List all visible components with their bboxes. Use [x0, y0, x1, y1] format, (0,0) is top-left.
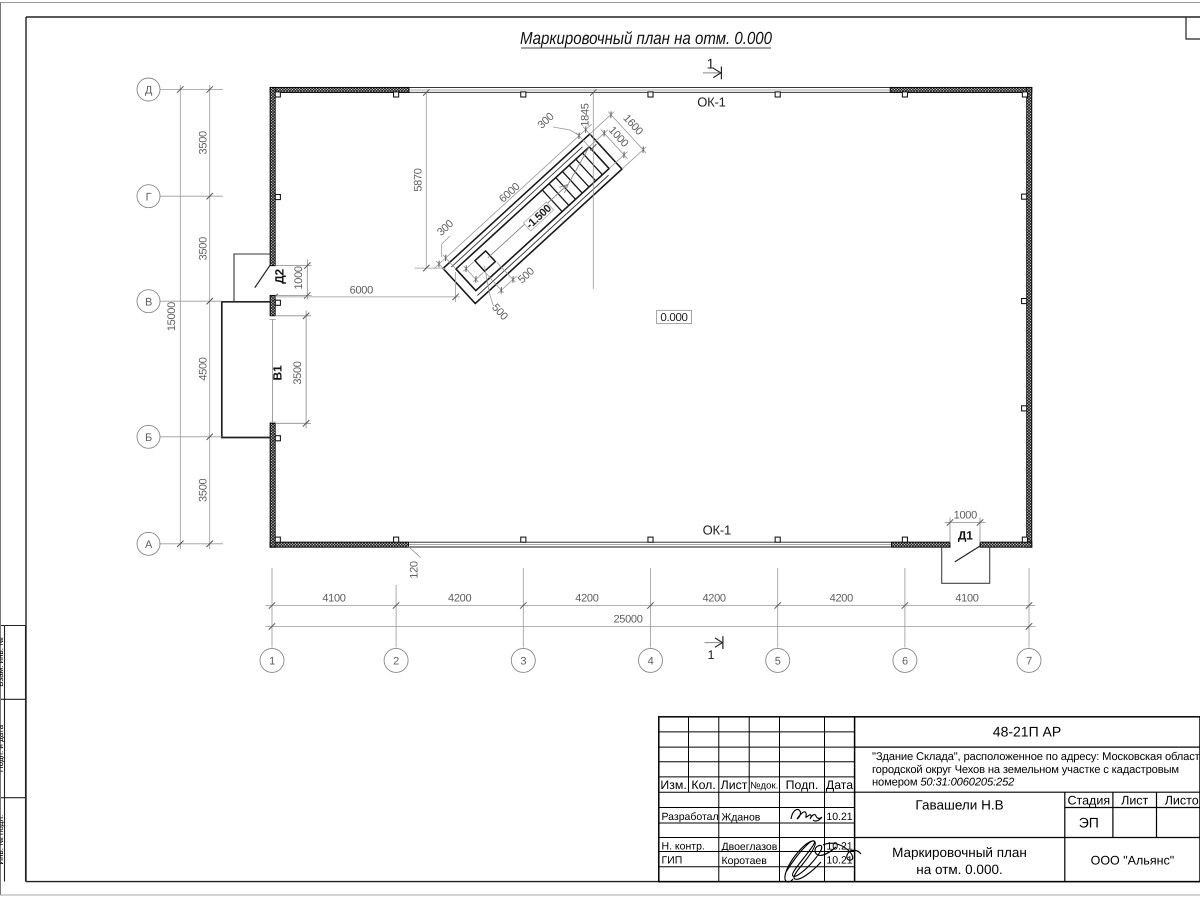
svg-text:Лист: Лист [1121, 793, 1148, 807]
svg-text:4500: 4500 [197, 357, 209, 380]
svg-text:1: 1 [707, 56, 715, 72]
svg-text:Подп. и дата: Подп. и дата [0, 724, 5, 772]
svg-text:Д1: Д1 [958, 528, 973, 542]
svg-text:Г: Г [146, 191, 152, 203]
svg-text:3500: 3500 [197, 237, 209, 260]
svg-text:1000: 1000 [954, 510, 977, 522]
svg-text:15000: 15000 [166, 302, 178, 331]
svg-text:Двоеглазов: Двоеглазов [722, 841, 778, 853]
svg-text:1: 1 [269, 656, 275, 668]
svg-text:Кол.: Кол. [691, 778, 715, 792]
svg-text:на отм. 0.000.: на отм. 0.000. [916, 862, 1002, 877]
svg-text:"Здание Склада", расположенное: "Здание Склада", расположенное по адресу… [872, 751, 1200, 763]
svg-text:№док.: №док. [750, 780, 778, 791]
svg-text:5870: 5870 [413, 168, 425, 191]
svg-text:Маркировочный план на отм. 0.0: Маркировочный план на отм. 0.000 [520, 28, 772, 48]
svg-text:6000: 6000 [350, 284, 373, 296]
svg-text:4100: 4100 [955, 592, 978, 604]
svg-text:номером 50:31:0060205:252: номером 50:31:0060205:252 [872, 777, 1015, 789]
svg-text:В: В [145, 296, 152, 308]
svg-text:4200: 4200 [448, 592, 471, 604]
svg-text:120: 120 [409, 561, 421, 579]
svg-text:Разработал: Разработал [662, 811, 719, 823]
svg-text:Стадия: Стадия [1067, 793, 1110, 807]
svg-text:4: 4 [648, 656, 654, 668]
svg-text:3500: 3500 [292, 361, 304, 384]
svg-text:3: 3 [520, 656, 526, 668]
svg-text:Листов: Листов [1165, 793, 1200, 807]
svg-text:5: 5 [775, 656, 781, 668]
svg-text:Жданов: Жданов [722, 811, 761, 823]
svg-text:Д: Д [145, 85, 153, 97]
svg-text:Б: Б [145, 432, 152, 444]
svg-text:7: 7 [1026, 656, 1032, 668]
svg-text:0.000: 0.000 [660, 312, 687, 324]
svg-text:Дата: Дата [826, 778, 853, 792]
svg-text:4200: 4200 [830, 592, 853, 604]
svg-text:4200: 4200 [702, 592, 725, 604]
svg-text:4100: 4100 [322, 592, 345, 604]
svg-text:6: 6 [902, 656, 908, 668]
svg-text:48-21П АР: 48-21П АР [993, 724, 1061, 740]
svg-text:10.21: 10.21 [826, 811, 852, 823]
svg-text:ЭП: ЭП [1079, 815, 1099, 831]
svg-text:4200: 4200 [575, 592, 598, 604]
svg-text:3500: 3500 [197, 131, 209, 154]
svg-text:ОК-1: ОК-1 [703, 523, 731, 538]
svg-text:городской округ Чехов на земел: городской округ Чехов на земельном участ… [872, 764, 1179, 776]
svg-text:1: 1 [708, 648, 715, 662]
svg-text:Инв. № подл.: Инв. № подл. [0, 815, 5, 865]
svg-text:Д2: Д2 [273, 269, 287, 284]
svg-text:25000: 25000 [613, 613, 642, 625]
svg-text:Гавашели Н.В: Гавашели Н.В [915, 798, 1003, 813]
svg-text:ГИП: ГИП [662, 855, 683, 867]
svg-text:ООО "Альянс": ООО "Альянс" [1091, 854, 1175, 868]
svg-text:Н. контр.: Н. контр. [662, 840, 705, 852]
svg-text:2: 2 [393, 656, 399, 668]
svg-text:Изм.: Изм. [660, 778, 686, 792]
svg-text:ОК-1: ОК-1 [697, 95, 725, 110]
svg-text:Лист: Лист [721, 778, 748, 792]
svg-text:1000: 1000 [293, 266, 305, 289]
svg-text:Взам. инв. №: Взам. инв. № [0, 637, 5, 687]
svg-text:Коротаев: Коротаев [722, 855, 768, 867]
svg-text:Маркировочный план: Маркировочный план [892, 845, 1027, 860]
svg-text:А: А [145, 539, 153, 551]
svg-text:3500: 3500 [197, 478, 209, 501]
svg-text:10.21: 10.21 [826, 855, 852, 867]
svg-text:Подп.: Подп. [786, 778, 819, 792]
svg-text:1845: 1845 [580, 103, 592, 126]
